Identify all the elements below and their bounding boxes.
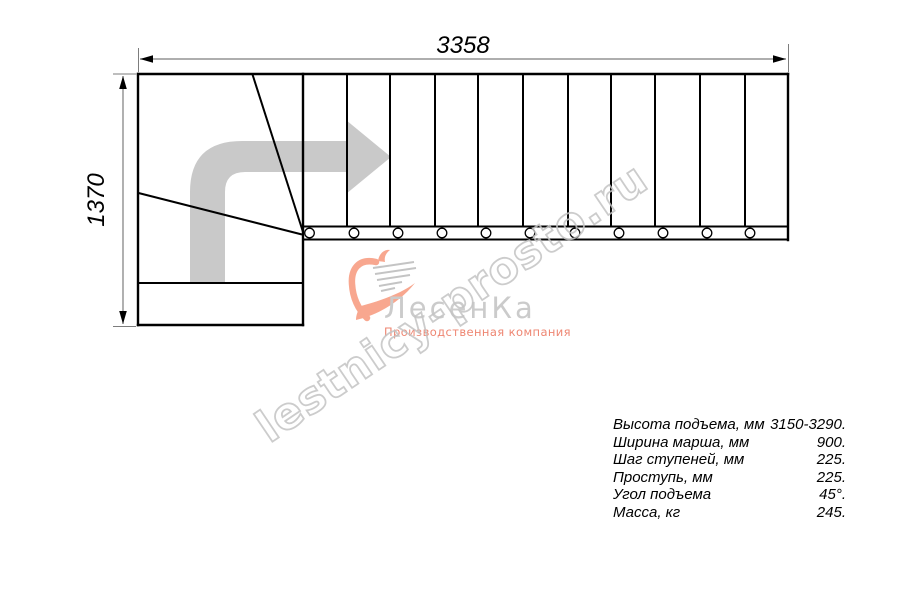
spec-label: Угол подъема — [613, 486, 711, 504]
stair-plan-page: 3358 1370 — [0, 0, 900, 600]
height-dimension-label: 1370 — [83, 173, 110, 227]
spec-value: 245. — [817, 504, 846, 522]
height-dimension: 1370 — [83, 76, 127, 324]
specs-table: Высота подъема, мм 3150-3290. Ширина мар… — [613, 416, 846, 521]
step-lines — [347, 74, 745, 226]
spec-row: Угол подъема 45°. — [613, 486, 846, 504]
dim-arrow-down-icon — [119, 311, 127, 324]
dim-arrow-up-icon — [119, 76, 127, 89]
spec-value: 3150-3290. — [770, 416, 846, 434]
dim-arrow-left-icon — [140, 55, 153, 63]
dim-arrow-right-icon — [773, 55, 786, 63]
spec-value: 900. — [817, 434, 846, 452]
spec-row: Проступь, мм 225. — [613, 469, 846, 487]
spec-value: 225. — [817, 451, 846, 469]
spec-label: Проступь, мм — [613, 469, 713, 487]
spec-row: Ширина марша, мм 900. — [613, 434, 846, 452]
spec-label: Шаг ступеней, мм — [613, 451, 744, 469]
spec-value: 45°. — [819, 486, 846, 504]
spec-row: Масса, кг 245. — [613, 504, 846, 522]
width-dimension-label: 3358 — [436, 32, 490, 59]
width-dimension: 3358 — [140, 32, 786, 63]
spec-value: 225. — [817, 469, 846, 487]
spec-label: Ширина марша, мм — [613, 434, 749, 452]
spec-label: Высота подъема, мм — [613, 416, 765, 434]
stringer-strip — [303, 227, 788, 240]
brand-name: ЛесенКа — [384, 291, 536, 325]
brand-tagline: Производственная компания — [384, 325, 571, 339]
spec-row: Шаг ступеней, мм 225. — [613, 451, 846, 469]
stair-outline — [138, 74, 788, 325]
spec-row: Высота подъема, мм 3150-3290. — [613, 416, 846, 434]
spec-label: Масса, кг — [613, 504, 680, 522]
baluster-circles — [305, 228, 755, 238]
logo-speed-lines-icon — [373, 262, 416, 291]
direction-arrow — [190, 120, 391, 283]
